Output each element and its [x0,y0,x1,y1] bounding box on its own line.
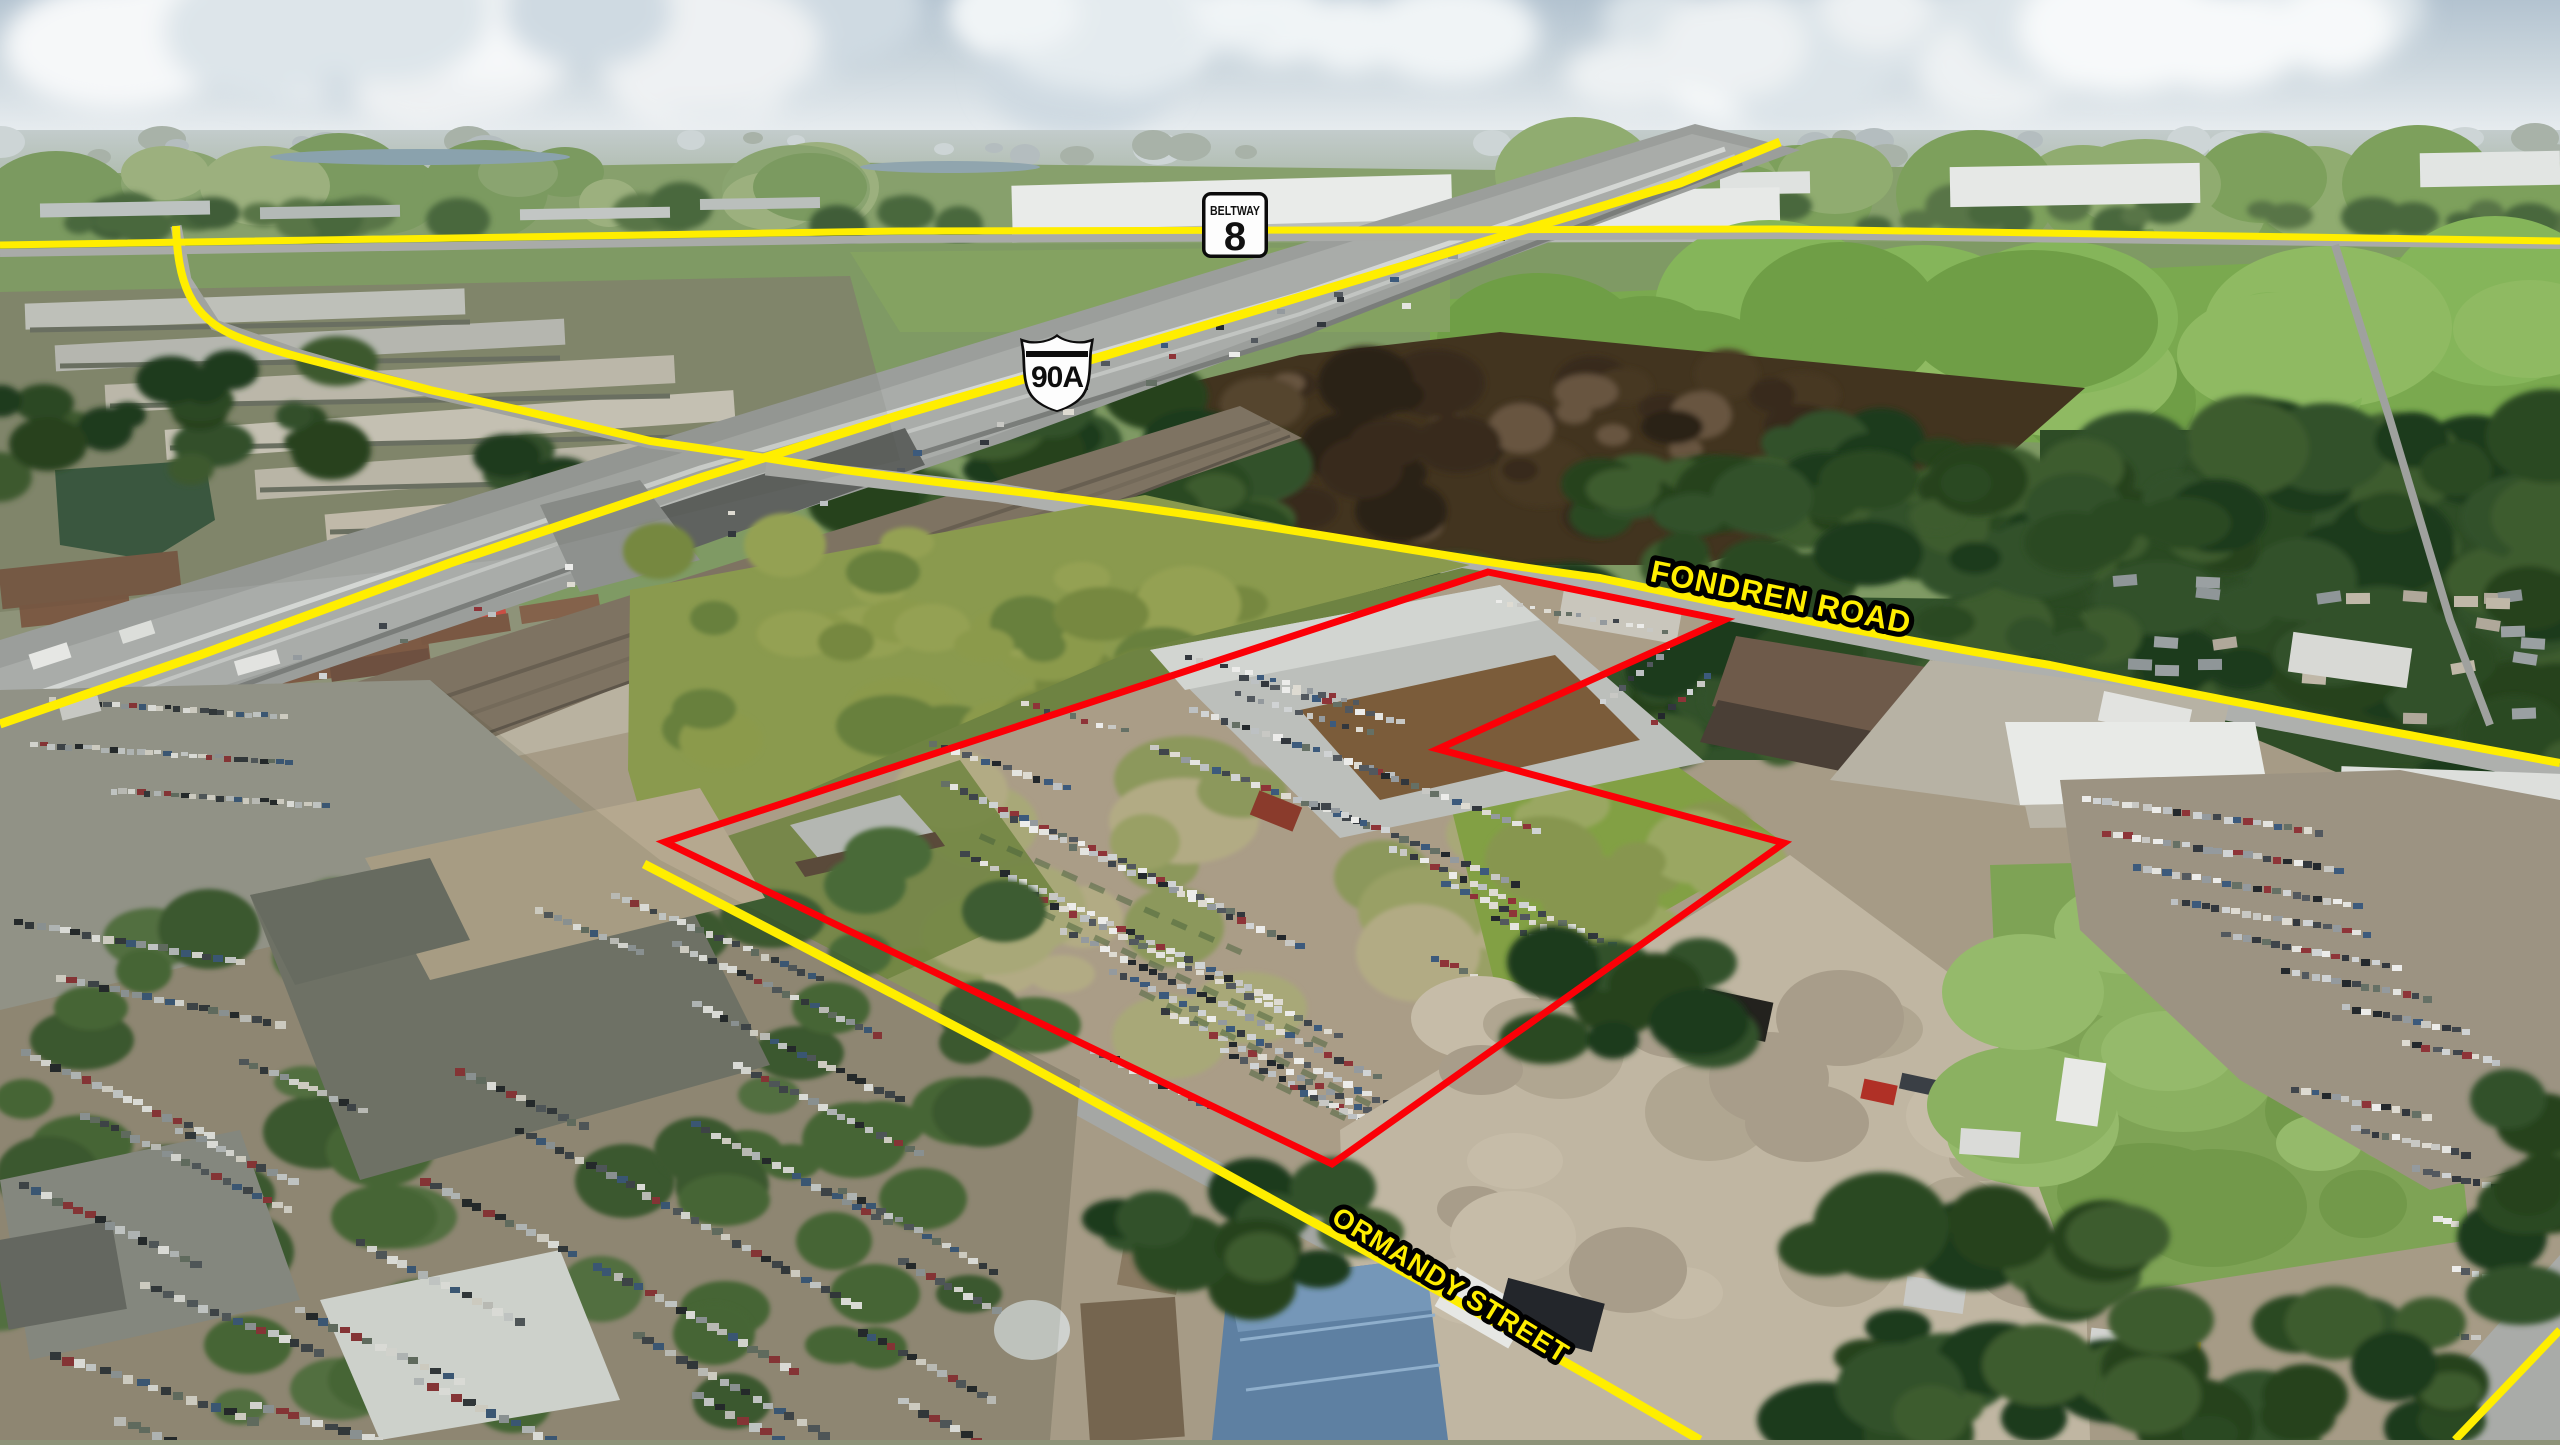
svg-text:8: 8 [1224,215,1246,259]
svg-text:90A: 90A [1031,361,1083,394]
